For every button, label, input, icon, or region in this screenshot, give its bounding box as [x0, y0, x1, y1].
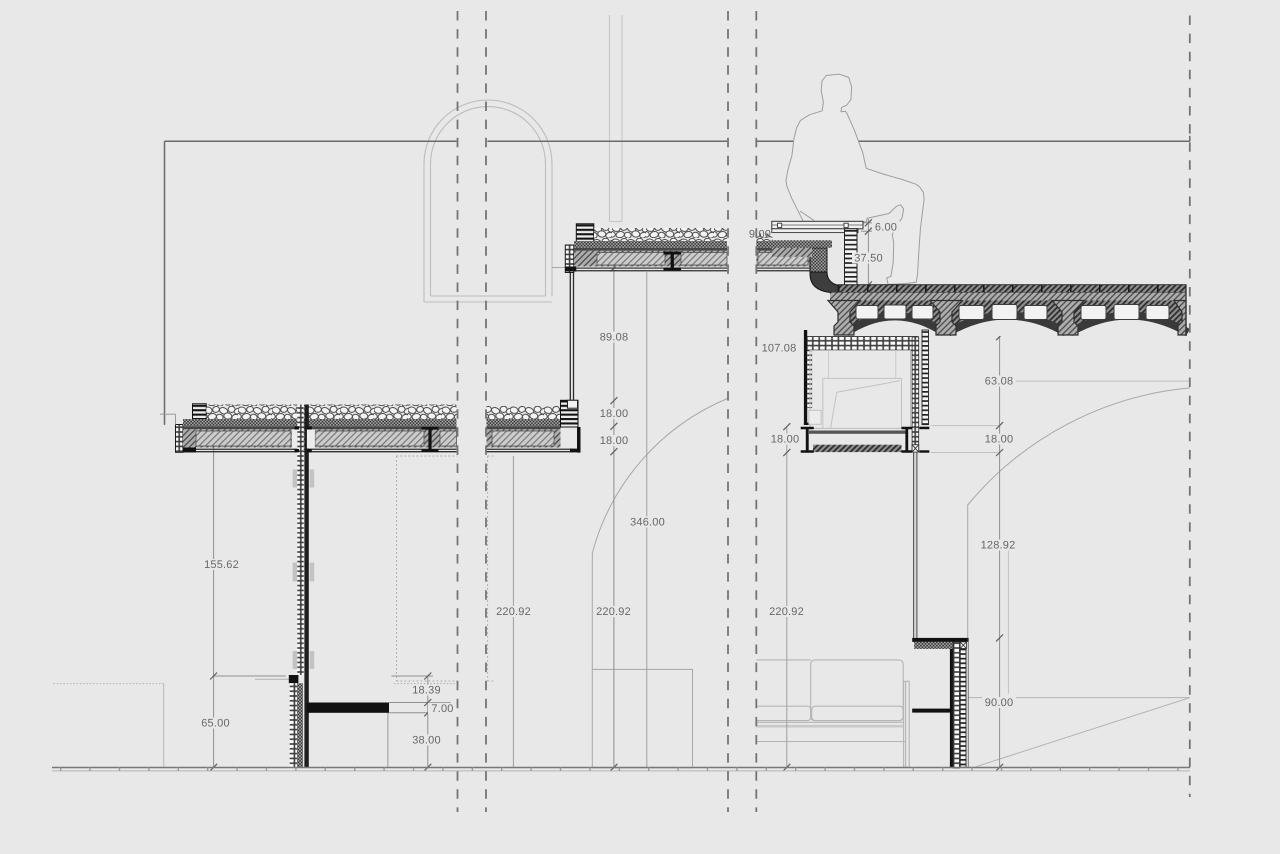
svg-text:89.08: 89.08 [600, 332, 629, 344]
svg-text:18.00: 18.00 [985, 434, 1014, 446]
svg-text:6.00: 6.00 [875, 222, 897, 234]
svg-text:346.00: 346.00 [630, 517, 665, 529]
svg-text:128.92: 128.92 [981, 540, 1016, 552]
svg-text:37.50: 37.50 [854, 253, 883, 265]
svg-text:107.08: 107.08 [762, 343, 797, 355]
svg-text:7.00: 7.00 [431, 703, 453, 715]
svg-text:220.92: 220.92 [596, 606, 631, 618]
svg-text:65.00: 65.00 [201, 718, 230, 730]
svg-text:63.08: 63.08 [985, 376, 1014, 388]
svg-text:38.00: 38.00 [412, 735, 441, 747]
svg-text:18.00: 18.00 [600, 435, 629, 447]
svg-text:18.39: 18.39 [412, 685, 441, 697]
svg-text:220.92: 220.92 [496, 606, 531, 618]
svg-text:90.00: 90.00 [985, 697, 1014, 709]
svg-text:220.92: 220.92 [769, 606, 804, 618]
svg-text:155.62: 155.62 [204, 559, 239, 571]
svg-text:9.00: 9.00 [749, 229, 771, 241]
svg-text:18.00: 18.00 [600, 408, 629, 420]
svg-text:18.00: 18.00 [771, 434, 800, 446]
